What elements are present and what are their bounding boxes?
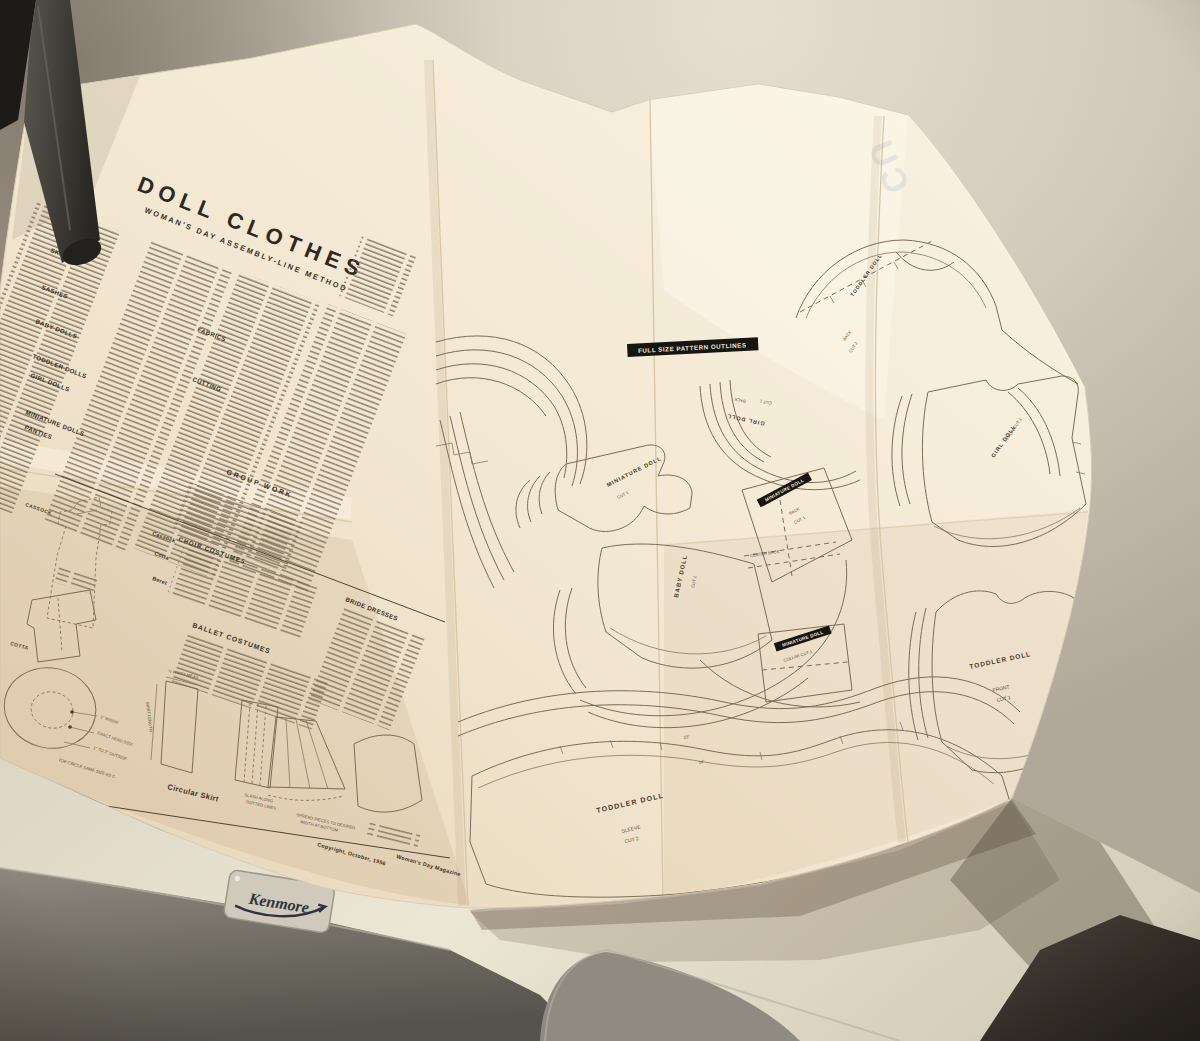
- photo-canvas: Kenmore CU: [0, 0, 1200, 1041]
- photo-scene: Kenmore CU: [0, 0, 1200, 1041]
- photo-vignette: [0, 0, 1200, 1041]
